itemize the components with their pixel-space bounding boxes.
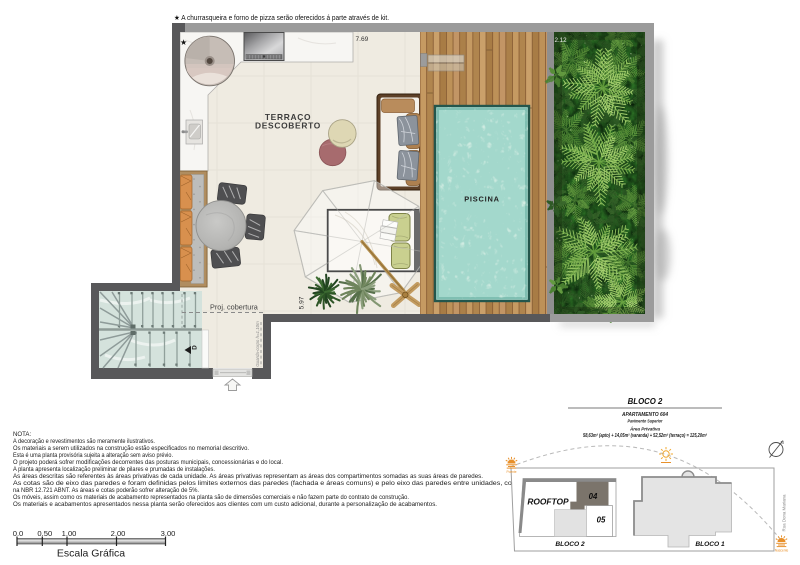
svg-text:Os materiais a serem utilizado: Os materiais a serem utilizados na const…: [13, 445, 249, 452]
svg-text:BLOCO 2: BLOCO 2: [555, 541, 585, 548]
svg-text:Rua Dona Mariana: Rua Dona Mariana: [782, 494, 787, 531]
svg-text:5.97: 5.97: [299, 296, 306, 309]
svg-text:Nascente: Nascente: [775, 549, 789, 553]
svg-text:Os materiais e acabamentos apr: Os materiais e acabamentos apresentados …: [13, 501, 437, 508]
svg-text:2.00: 2.00: [111, 529, 126, 538]
svg-text:BLOCO 1: BLOCO 1: [695, 541, 725, 548]
svg-text:1.00: 1.00: [62, 529, 77, 538]
svg-text:NOTA:: NOTA:: [13, 431, 31, 438]
svg-text:A decoração e revestimentos sã: A decoração e revestimentos são merament…: [13, 438, 155, 445]
svg-text:BLOCO 2: BLOCO 2: [628, 397, 663, 406]
svg-text:Os móveis, assim como os mater: Os móveis, assim como os materiais de ac…: [13, 494, 409, 501]
svg-text:APARTAMENTO 604: APARTAMENTO 604: [621, 412, 668, 418]
svg-text:04: 04: [589, 492, 598, 501]
svg-text:58,63m² (apto) + 14,05m² (vara: 58,63m² (apto) + 14,05m² (varanda) + 52,…: [583, 433, 707, 439]
svg-text:★: ★: [180, 38, 187, 47]
svg-text:PISCINA: PISCINA: [464, 195, 500, 204]
svg-text:★ A churrasqueira e forno de p: ★ A churrasqueira e forno de pizza serão…: [174, 14, 389, 22]
svg-text:N: N: [781, 440, 784, 445]
svg-text:0.50: 0.50: [37, 529, 52, 538]
svg-text:7.69: 7.69: [356, 36, 369, 43]
svg-text:0.0: 0.0: [13, 529, 24, 538]
svg-text:DESCOBERTO: DESCOBERTO: [255, 121, 321, 131]
svg-text:D: D: [192, 345, 199, 350]
svg-text:Poente: Poente: [506, 470, 516, 474]
svg-text:Pavimento Superior: Pavimento Superior: [628, 419, 664, 424]
svg-text:05: 05: [597, 516, 606, 525]
svg-text:As áreas descritas são referen: As áreas descritas são referentes às áre…: [13, 473, 483, 480]
svg-text:Guarda-corpo h=1,10m: Guarda-corpo h=1,10m: [255, 321, 260, 367]
svg-text:3.00: 3.00: [161, 529, 176, 538]
svg-text:Escala Gráfica: Escala Gráfica: [57, 548, 125, 560]
svg-text:na NBR 12.721 ABNT. As áreas e: na NBR 12.721 ABNT. As áreas e cotas pod…: [13, 487, 199, 494]
svg-text:O projeto poderá sofrer modifi: O projeto poderá sofrer modificações dec…: [13, 459, 283, 466]
svg-text:Área Privativa: Área Privativa: [629, 426, 660, 433]
svg-text:Esta é uma planta provisória s: Esta é uma planta provisória sujeita a a…: [13, 452, 173, 459]
svg-text:ROOFTOP: ROOFTOP: [527, 497, 569, 507]
svg-text:Proj. cobertura: Proj. cobertura: [210, 303, 259, 312]
svg-text:A planta apresenta localização: A planta apresenta localização prelimina…: [13, 466, 215, 473]
svg-text:2.12: 2.12: [555, 37, 568, 44]
svg-text:As cotas são de eixo das pared: As cotas são de eixo das paredes e foram…: [13, 480, 562, 487]
